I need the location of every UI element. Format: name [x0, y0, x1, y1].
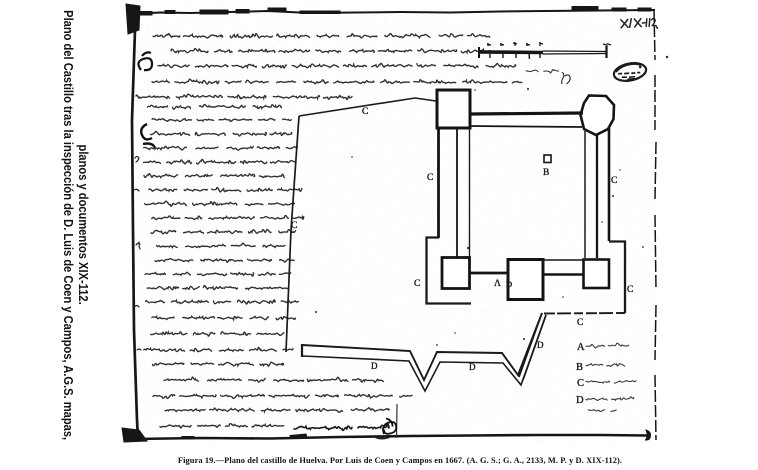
- svg-text:C: C: [577, 378, 584, 389]
- svg-text:C: C: [627, 285, 633, 295]
- svg-text:Λ: Λ: [494, 279, 501, 289]
- svg-text:D: D: [506, 279, 512, 289]
- svg-text:D: D: [576, 395, 584, 406]
- svg-text:C: C: [362, 107, 368, 117]
- svg-text:B: B: [576, 362, 583, 373]
- svg-text:C: C: [577, 318, 583, 328]
- svg-text:C: C: [414, 279, 420, 289]
- svg-text:D: D: [469, 362, 476, 372]
- svg-text:C: C: [427, 173, 433, 183]
- svg-text:D: D: [371, 361, 378, 371]
- svg-text:B: B: [543, 168, 549, 178]
- svg-text:D: D: [537, 340, 544, 350]
- svg-text:A: A: [577, 342, 585, 353]
- svg-text:C: C: [611, 176, 617, 186]
- svg-text:C: C: [291, 221, 297, 231]
